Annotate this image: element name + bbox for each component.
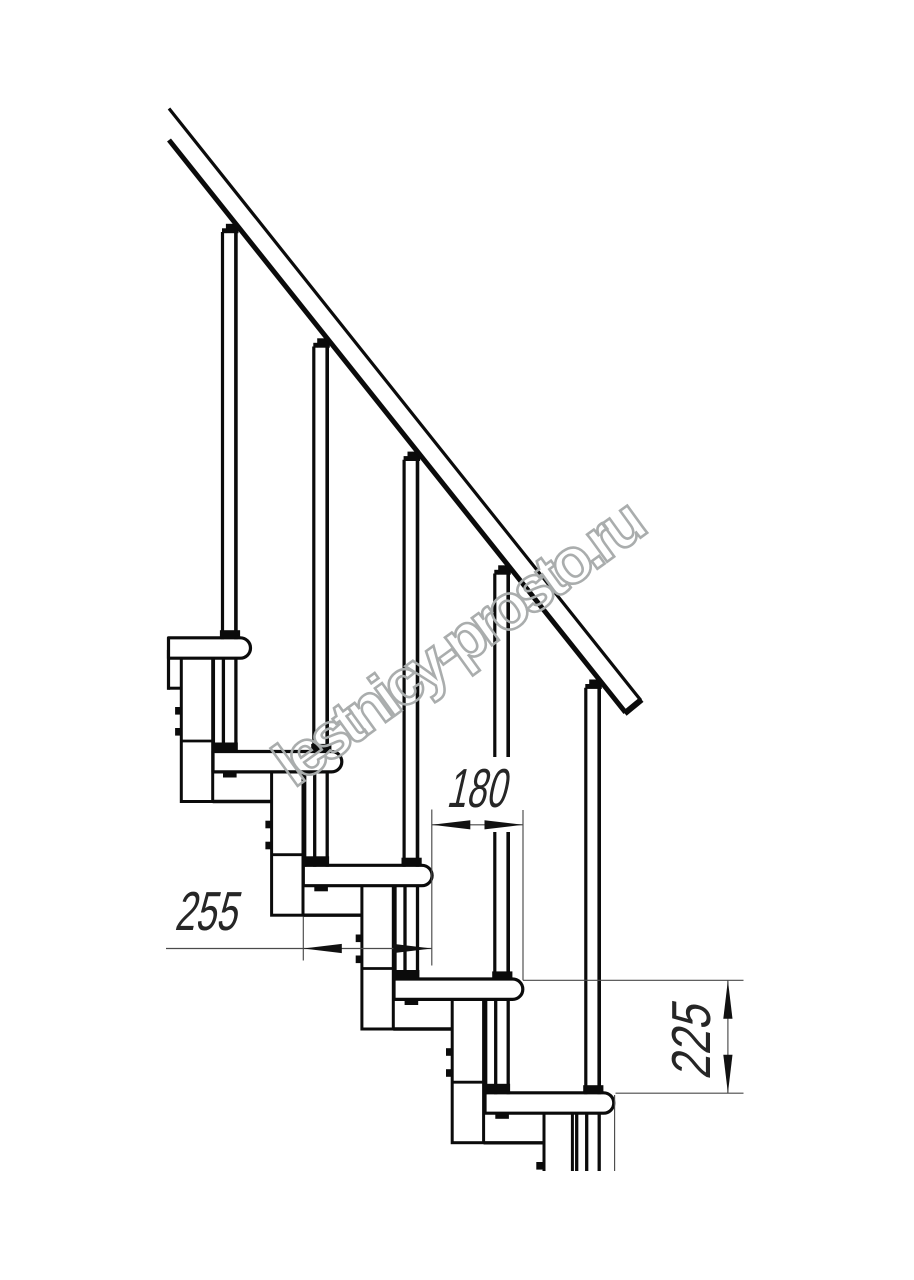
- svg-text:225: 225: [661, 995, 722, 1083]
- svg-text:255: 255: [171, 881, 247, 942]
